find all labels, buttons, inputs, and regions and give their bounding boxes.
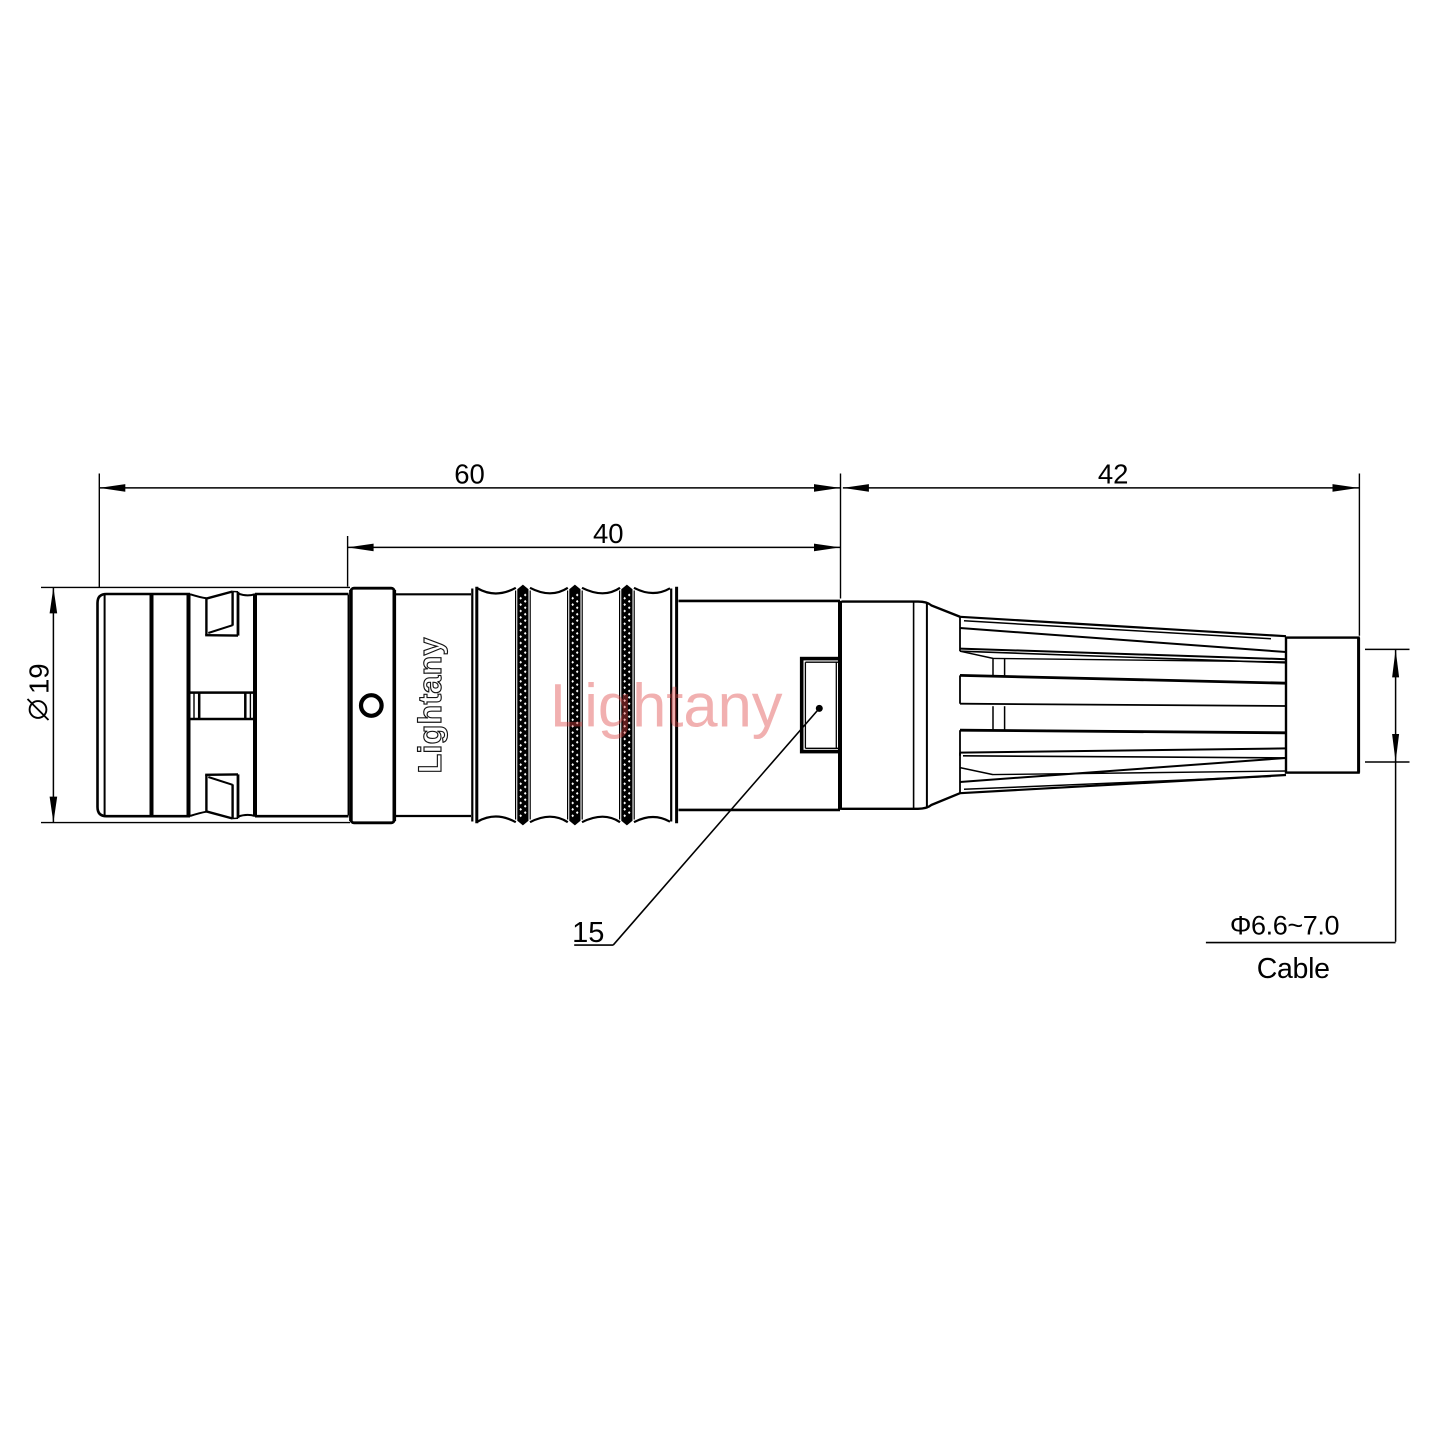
svg-text:Lightany: Lightany	[412, 637, 448, 773]
svg-text:Φ6.6~7.0: Φ6.6~7.0	[1230, 910, 1339, 940]
svg-text:15: 15	[572, 917, 604, 949]
svg-text:42: 42	[1098, 459, 1129, 490]
svg-text:60: 60	[454, 459, 485, 490]
svg-text:Cable: Cable	[1257, 953, 1330, 985]
svg-text:40: 40	[593, 518, 624, 549]
svg-text:Lightany: Lightany	[550, 671, 783, 740]
svg-text:19: 19	[24, 663, 55, 694]
